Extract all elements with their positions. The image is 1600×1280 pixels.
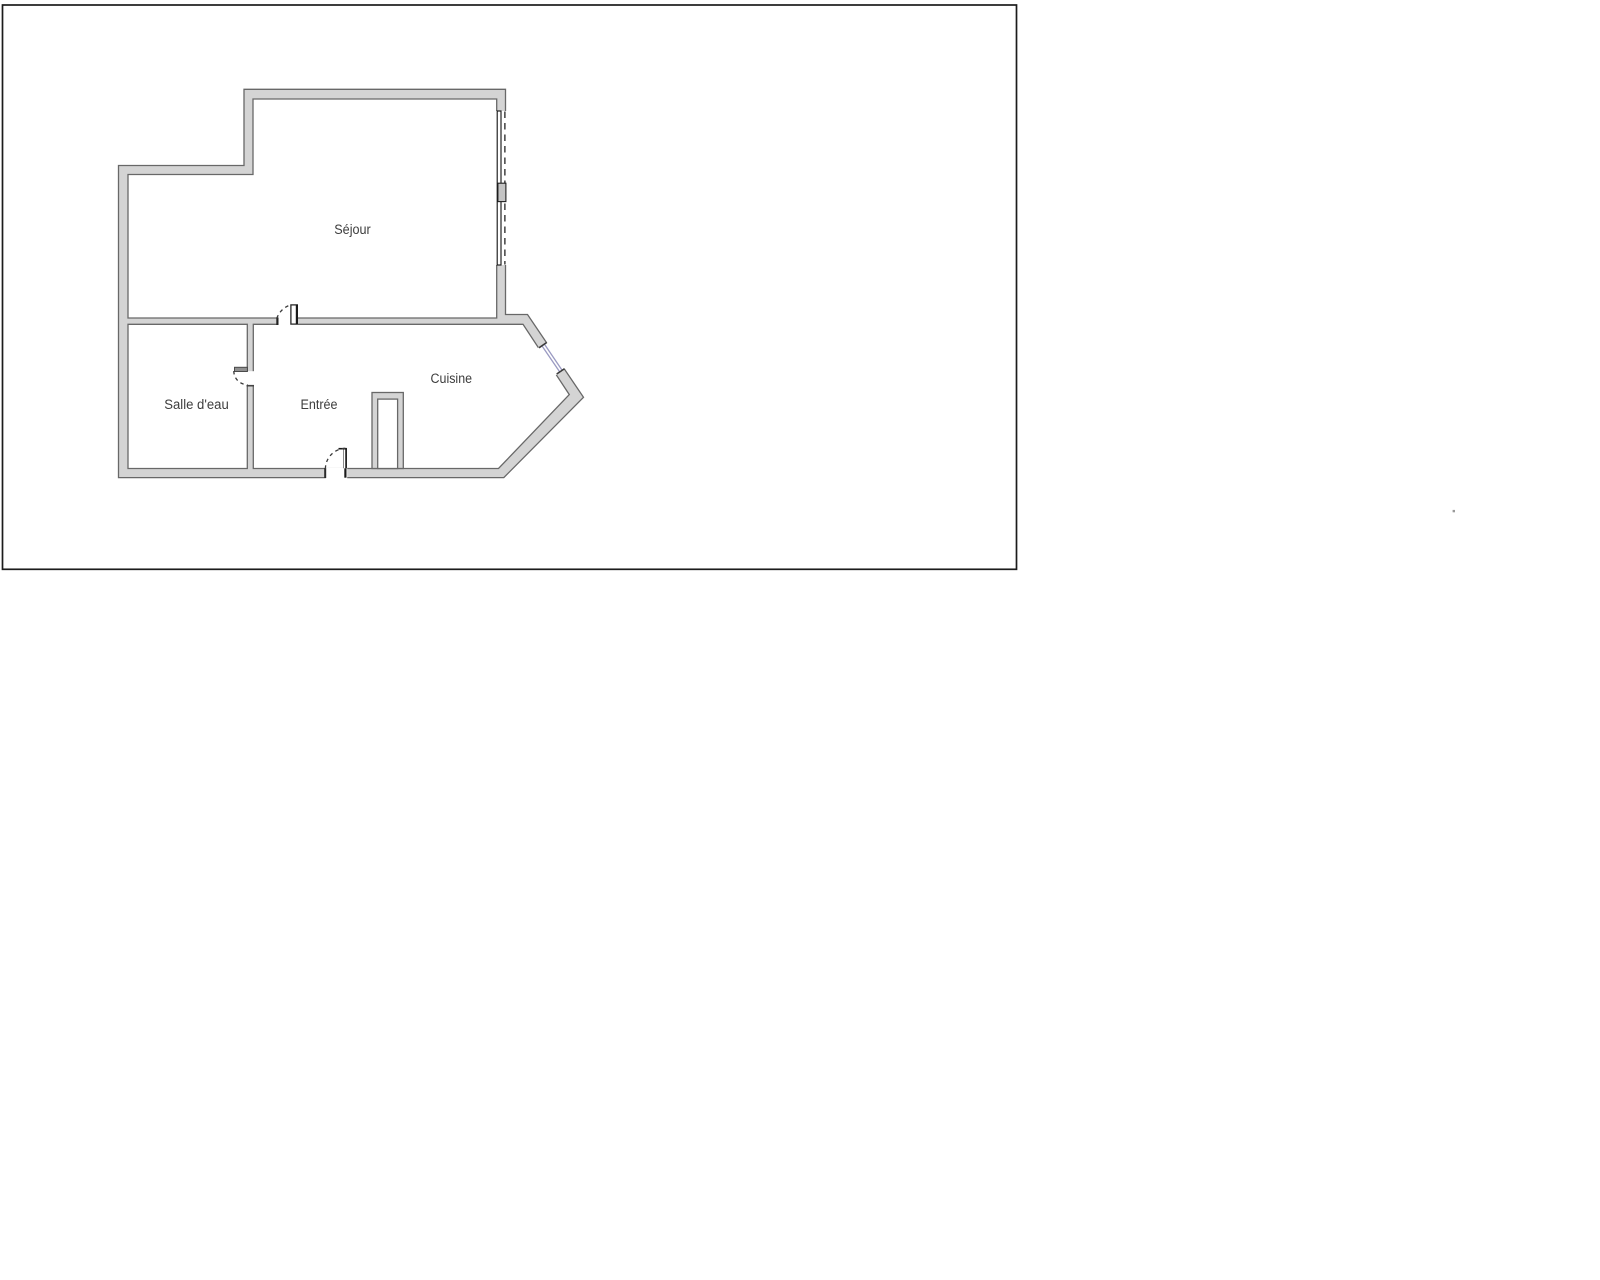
svg-text:Cuisine: Cuisine [431,371,473,386]
svg-text:Séjour: Séjour [334,222,371,237]
svg-text:Salle d'eau: Salle d'eau [164,397,229,412]
svg-text:Entrée: Entrée [301,397,338,412]
